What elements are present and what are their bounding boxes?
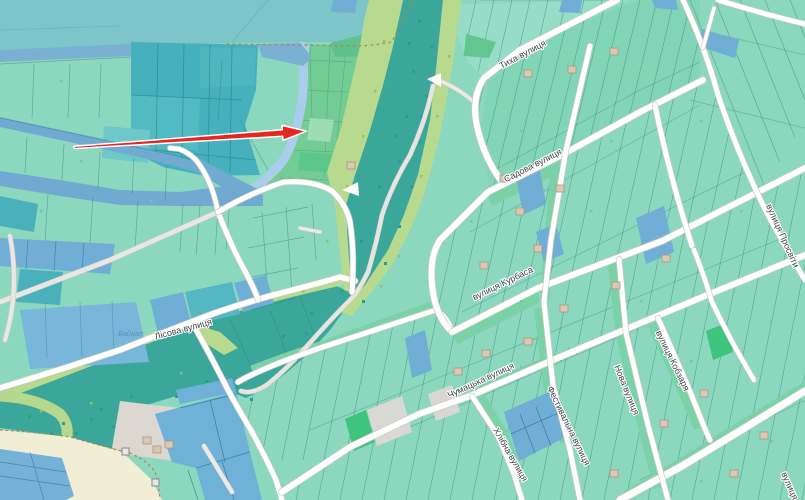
svg-text:Байкал: Байкал bbox=[118, 329, 144, 338]
